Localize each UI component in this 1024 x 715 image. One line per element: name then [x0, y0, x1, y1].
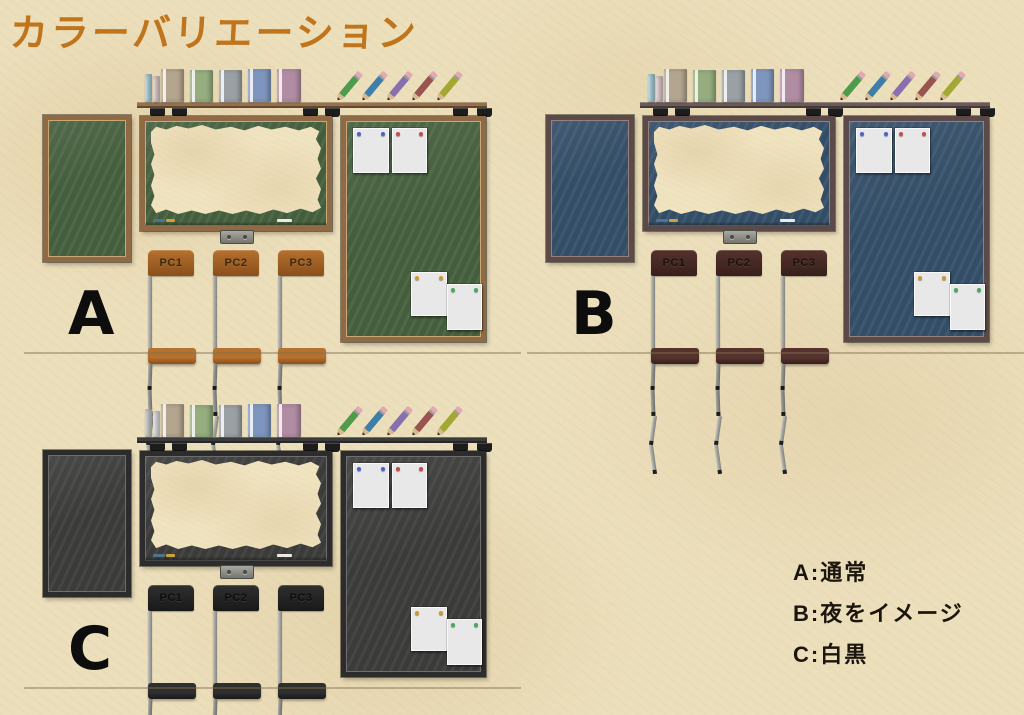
book [277, 404, 301, 437]
chair: PC1 [651, 250, 697, 347]
variant-letter: C [68, 619, 112, 679]
chair: PC2 [716, 250, 762, 347]
chair-backrest: PC1 [651, 250, 697, 276]
chair-label: PC1 [663, 257, 686, 269]
chair-post [278, 611, 282, 647]
chair-leg [716, 364, 721, 390]
variant-group-b: PC1 PC2 PC3 [525, 58, 1024, 358]
book [190, 70, 213, 102]
chair-post [213, 312, 217, 348]
chair-seat [278, 683, 326, 699]
chair-post [716, 276, 720, 312]
paper-sheet [654, 125, 824, 214]
chair-seat [148, 683, 196, 699]
chair-leg [651, 364, 656, 390]
book [161, 404, 184, 437]
chair-leg [781, 390, 786, 416]
chair-leg [148, 699, 153, 715]
floor-line [24, 352, 521, 354]
chair-leg [779, 445, 787, 474]
book-small [153, 76, 160, 102]
pinned-note [447, 619, 482, 665]
book-small [145, 409, 152, 437]
chair-seat [213, 683, 261, 699]
chair-leg [649, 416, 657, 445]
small-chalkboard [546, 115, 634, 262]
chair-leg [714, 416, 722, 445]
book-small [153, 411, 160, 437]
book-small [648, 74, 655, 102]
chair-post [781, 312, 785, 348]
book [664, 69, 687, 102]
bulletin-board [844, 116, 989, 342]
pencil [360, 405, 389, 437]
book [219, 405, 242, 437]
main-chalkboard [140, 451, 332, 566]
chair-label: PC3 [793, 257, 816, 269]
book [248, 69, 271, 102]
chair-post [716, 312, 720, 348]
small-chalkboard [43, 115, 131, 262]
chalkboard-surface [552, 121, 628, 256]
chair-leg [278, 699, 283, 715]
book [751, 69, 774, 102]
book [780, 69, 804, 102]
pencil [938, 70, 967, 102]
chair-post [651, 276, 655, 312]
chair-label: PC3 [290, 592, 313, 604]
chalk-tray [648, 222, 830, 226]
chalk-piece [780, 219, 795, 222]
chalk-piece [153, 219, 165, 222]
pinned-note [353, 128, 389, 173]
pencil [838, 70, 867, 102]
chair-post [148, 276, 152, 312]
chair-post [148, 312, 152, 348]
page-background: { "title": "カラーバリエーション", "colors": { "ti… [0, 0, 1024, 715]
pencil [863, 70, 892, 102]
legend-item-b: B:夜をイメージ [793, 593, 964, 634]
book [693, 70, 716, 102]
chair-post [278, 276, 282, 312]
chair: PC2 [213, 250, 259, 347]
chair: PC1 [148, 250, 194, 347]
chair: PC1 [148, 585, 194, 682]
pinned-note [447, 284, 482, 330]
legend: A:通常 B:夜をイメージ C:白黒 [793, 552, 964, 675]
mount-bracket [723, 230, 757, 244]
chair-leg [779, 416, 787, 445]
chair-leg [649, 445, 657, 474]
chair: PC3 [781, 250, 827, 347]
chair-backrest: PC3 [278, 250, 324, 276]
book [219, 70, 242, 102]
floor-line [24, 687, 521, 689]
chair-seat [716, 348, 764, 364]
chalk-tray [145, 222, 327, 226]
floor-line [527, 352, 1024, 354]
chair-seat [278, 348, 326, 364]
variant-letter: B [571, 284, 617, 344]
chair-post [213, 276, 217, 312]
chair-leg [213, 364, 218, 390]
chair-post [278, 647, 282, 683]
chalk-piece [669, 219, 678, 222]
pinned-note [411, 272, 447, 316]
chair-backrest: PC2 [213, 250, 259, 276]
pinned-note [950, 284, 985, 330]
pencil [435, 70, 464, 102]
book [190, 405, 213, 437]
main-chalkboard [140, 116, 332, 231]
paper-sheet [151, 125, 321, 214]
chair-backrest: PC2 [716, 250, 762, 276]
chair-leg [714, 445, 722, 474]
variant-letter: A [68, 284, 114, 344]
chair-label: PC2 [728, 257, 751, 269]
small-chalkboard [43, 450, 131, 597]
chair-leg [213, 699, 218, 715]
chair-post [148, 647, 152, 683]
pencil [360, 70, 389, 102]
chalk-piece [656, 219, 668, 222]
chair-seat [213, 348, 261, 364]
book [722, 70, 745, 102]
chair-backrest: PC3 [781, 250, 827, 276]
chair-seat [781, 348, 829, 364]
legend-item-a: A:通常 [793, 552, 964, 593]
book [161, 69, 184, 102]
pencil [385, 70, 414, 102]
chair-label: PC3 [290, 257, 313, 269]
book-small [656, 76, 663, 102]
pinned-note [353, 463, 389, 508]
pencil [385, 405, 414, 437]
chair-post [651, 312, 655, 348]
book [277, 69, 301, 102]
chair-seat [651, 348, 699, 364]
chair-backrest: PC3 [278, 585, 324, 611]
chair-label: PC2 [225, 257, 248, 269]
chair-backrest: PC1 [148, 250, 194, 276]
chalk-piece [277, 554, 292, 557]
chair-leg [716, 390, 721, 416]
chalk-piece [166, 219, 175, 222]
variant-group-c: PC1 PC2 PC3 [22, 393, 522, 693]
pencil [335, 70, 364, 102]
book [248, 404, 271, 437]
chair-leg [781, 364, 786, 390]
book-small [145, 74, 152, 102]
pinned-note [392, 128, 427, 173]
bulletin-board [341, 451, 486, 677]
chair-label: PC2 [225, 592, 248, 604]
chalkboard-surface [49, 121, 125, 256]
chair-backrest: PC2 [213, 585, 259, 611]
pinned-note [392, 463, 427, 508]
legend-item-c: C:白黒 [793, 634, 964, 675]
chair-post [781, 276, 785, 312]
mount-bracket [220, 565, 254, 579]
chair: PC3 [278, 585, 324, 682]
chair: PC2 [213, 585, 259, 682]
chair-leg [651, 390, 656, 416]
main-chalkboard [643, 116, 835, 231]
chair-label: PC1 [160, 592, 183, 604]
chair-label: PC1 [160, 257, 183, 269]
chair-backrest: PC1 [148, 585, 194, 611]
chalk-piece [153, 554, 165, 557]
chair-seat [148, 348, 196, 364]
chalk-tray [145, 557, 327, 561]
pinned-note [895, 128, 930, 173]
variant-group-a: PC1 PC2 PC3 [22, 58, 522, 358]
chalk-piece [277, 219, 292, 222]
pencil [335, 405, 364, 437]
pinned-note [856, 128, 892, 173]
chair: PC3 [278, 250, 324, 347]
chair-post [213, 611, 217, 647]
bulletin-board [341, 116, 486, 342]
pencil [913, 70, 942, 102]
pinned-note [411, 607, 447, 651]
mount-bracket [220, 230, 254, 244]
pencil [410, 70, 439, 102]
pencil [410, 405, 439, 437]
pinned-note [914, 272, 950, 316]
chair-post [148, 611, 152, 647]
chalkboard-surface [49, 456, 125, 591]
chair-leg [148, 364, 153, 390]
chair-post [278, 312, 282, 348]
chair-post [213, 647, 217, 683]
pencil [888, 70, 917, 102]
chair-leg [278, 364, 283, 390]
page-title: カラーバリエーション [9, 2, 421, 57]
pencil [435, 405, 464, 437]
paper-sheet [151, 460, 321, 549]
chalk-piece [166, 554, 175, 557]
